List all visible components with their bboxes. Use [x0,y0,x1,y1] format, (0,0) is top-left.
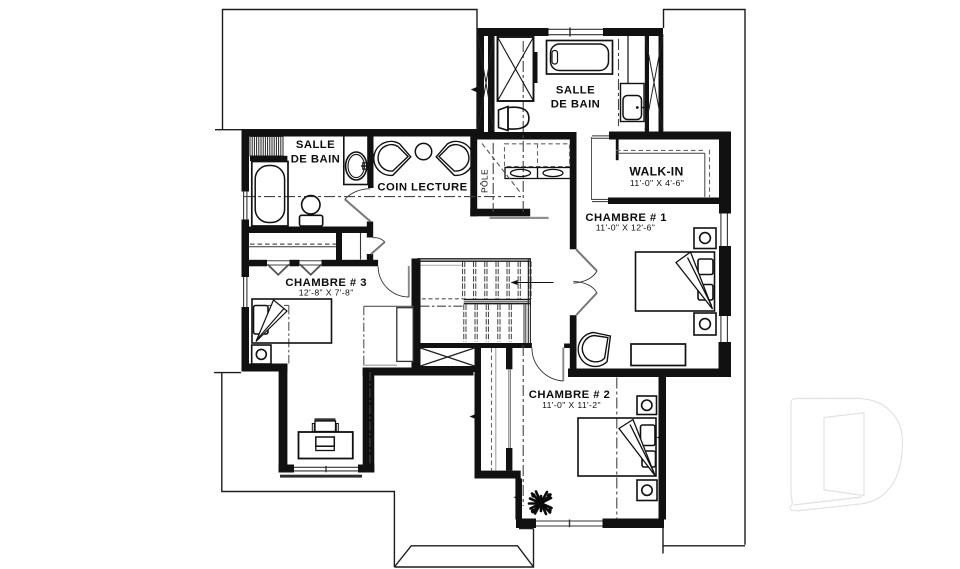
svg-text:WALK-IN: WALK-IN [629,165,683,179]
svg-text:SALLE: SALLE [556,85,595,97]
svg-text:11'-0" X 12'-6": 11'-0" X 12'-6" [596,223,656,233]
svg-text:COIN LECTURE: COIN LECTURE [377,182,467,194]
svg-text:PÔLE: PÔLE [480,169,490,193]
svg-text:DE BAIN: DE BAIN [291,154,341,166]
svg-text:11'-0" X 4'-6": 11'-0" X 4'-6" [630,178,684,188]
svg-text:SALLE: SALLE [296,139,335,151]
svg-text:12'-8" X 7'-8": 12'-8" X 7'-8" [299,288,354,298]
svg-text:DE BAIN: DE BAIN [551,99,601,111]
svg-text:11'-0" X 11'-2": 11'-0" X 11'-2" [542,400,601,410]
